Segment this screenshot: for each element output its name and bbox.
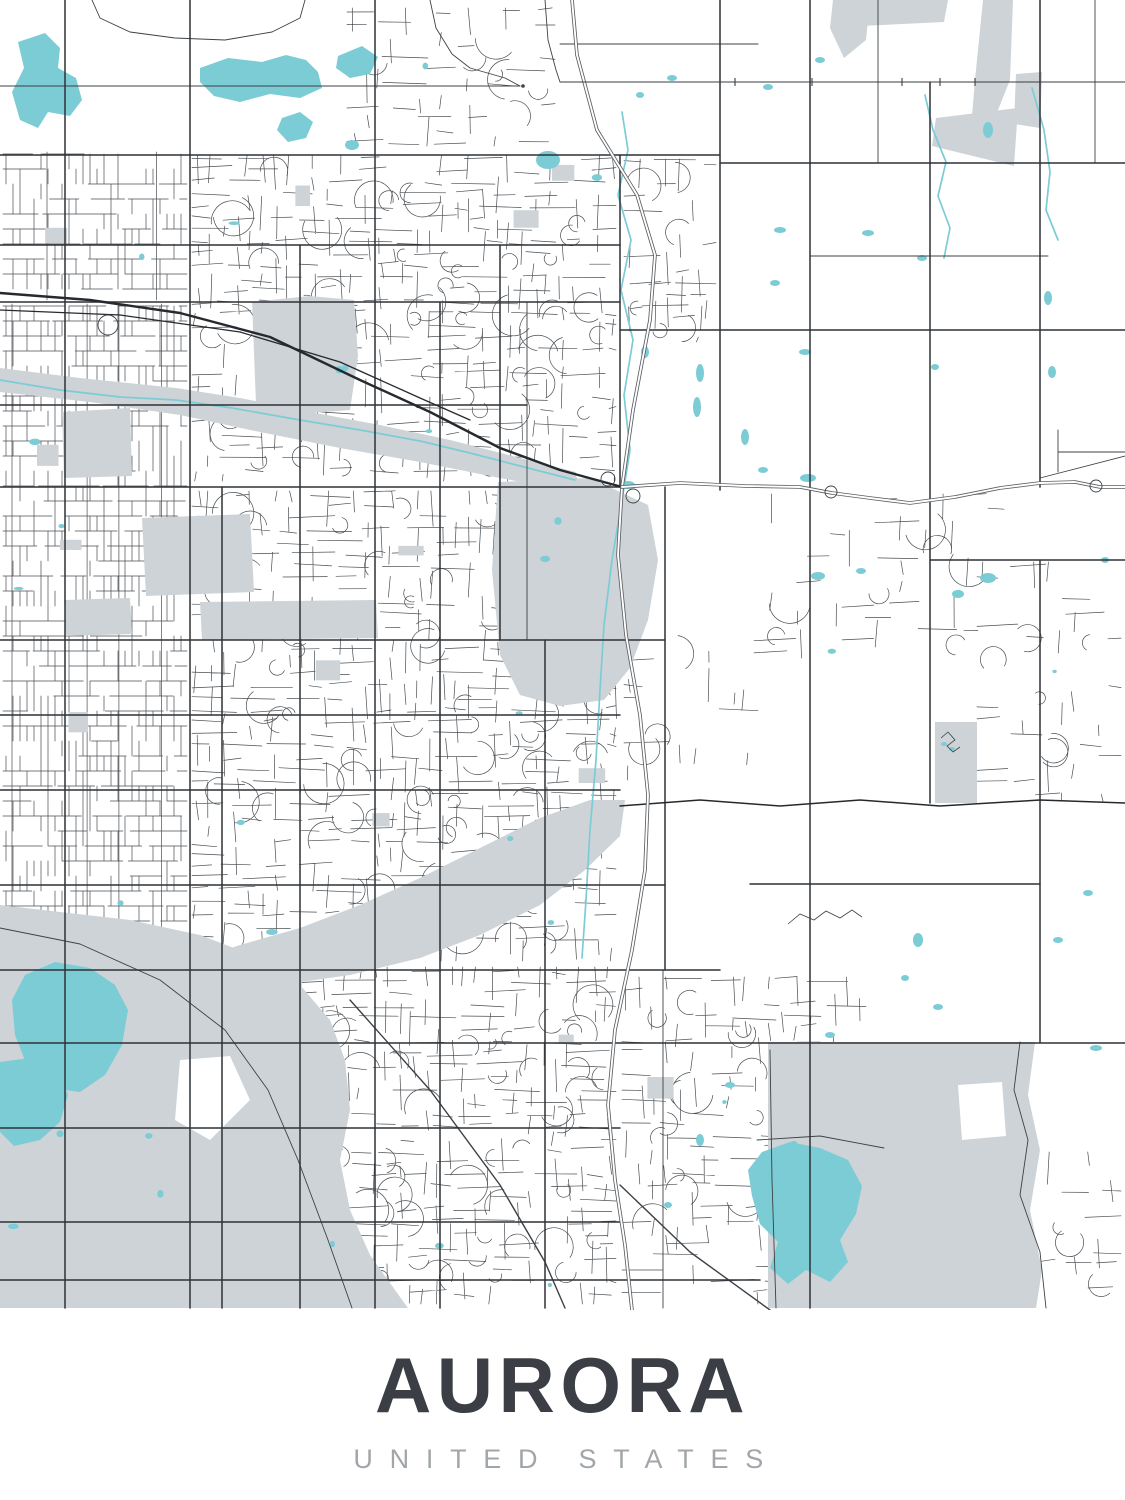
city-map — [0, 0, 1125, 1310]
country-subtitle: UNITED STATES — [0, 1444, 1125, 1475]
title-block: AURORA UNITED STATES — [0, 1310, 1125, 1475]
city-title: AURORA — [0, 1346, 1125, 1424]
map-canvas — [0, 0, 1125, 1310]
map-poster: AURORA UNITED STATES — [0, 0, 1125, 1500]
